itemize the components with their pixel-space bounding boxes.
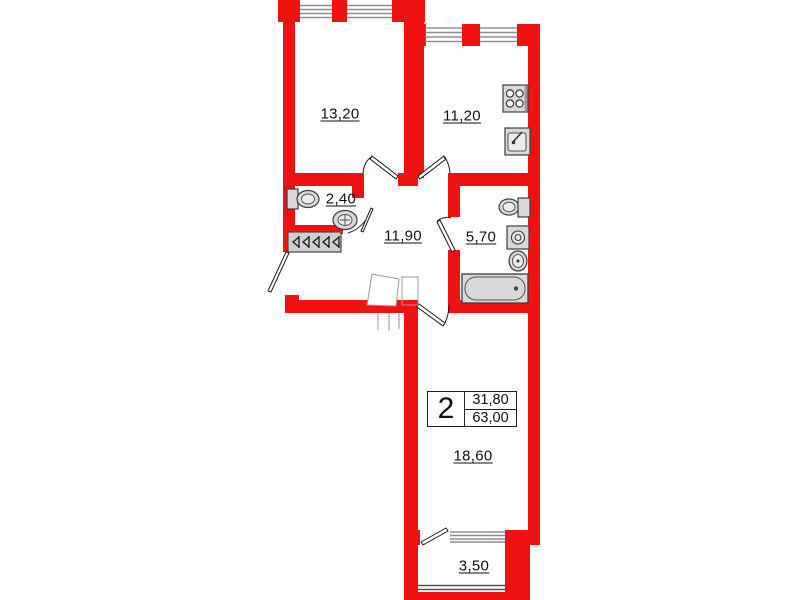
door-swings xyxy=(268,156,455,545)
window-living-right-icon xyxy=(347,6,392,18)
bathtub-icon xyxy=(462,274,528,303)
room-label-bedroom: 18,60 xyxy=(453,448,492,465)
unit-rooms-count: 2 xyxy=(428,392,465,426)
room-label-bathroom: 5,70 xyxy=(466,229,496,246)
floor-plan-drawing xyxy=(0,0,800,600)
room-label-balcony: 3,50 xyxy=(459,558,489,575)
living-room-door-swing xyxy=(363,156,398,179)
balcony-glazing-icon xyxy=(418,586,505,590)
bathroom-door-swing xyxy=(437,217,455,252)
bath-toilet-icon xyxy=(499,198,530,217)
washing-machine-icon xyxy=(507,226,529,249)
unit-total-area: 63,00 xyxy=(465,410,516,427)
room-label-wc: 2,40 xyxy=(326,191,356,208)
kitchen-sink-icon xyxy=(505,128,530,155)
room-label-living: 13,20 xyxy=(320,106,359,123)
floor-plan-canvas: 13,20 11,20 2,40 11,90 5,70 18,60 3,50 2… xyxy=(0,0,800,600)
bedroom-door-swing xyxy=(417,304,449,326)
wc-basin-icon xyxy=(333,211,357,230)
balcony-door-swing xyxy=(421,528,448,545)
wc-toilet-icon xyxy=(287,189,319,209)
stove-icon xyxy=(503,85,528,112)
unit-living-area: 31,80 xyxy=(465,392,516,410)
bath-basin-icon xyxy=(509,251,527,271)
window-kitchen-left-icon xyxy=(425,28,462,42)
room-label-kitchen: 11,20 xyxy=(443,108,481,125)
window-living-left-icon xyxy=(300,6,332,18)
wardrobe-icon xyxy=(288,232,341,252)
entry-door-swing xyxy=(268,252,289,292)
window-bedroom-icon xyxy=(450,532,505,542)
unit-info-badge: 2 31,80 63,00 xyxy=(427,391,517,427)
window-kitchen-right-icon xyxy=(480,28,517,42)
room-label-hallway: 11,90 xyxy=(384,228,422,245)
